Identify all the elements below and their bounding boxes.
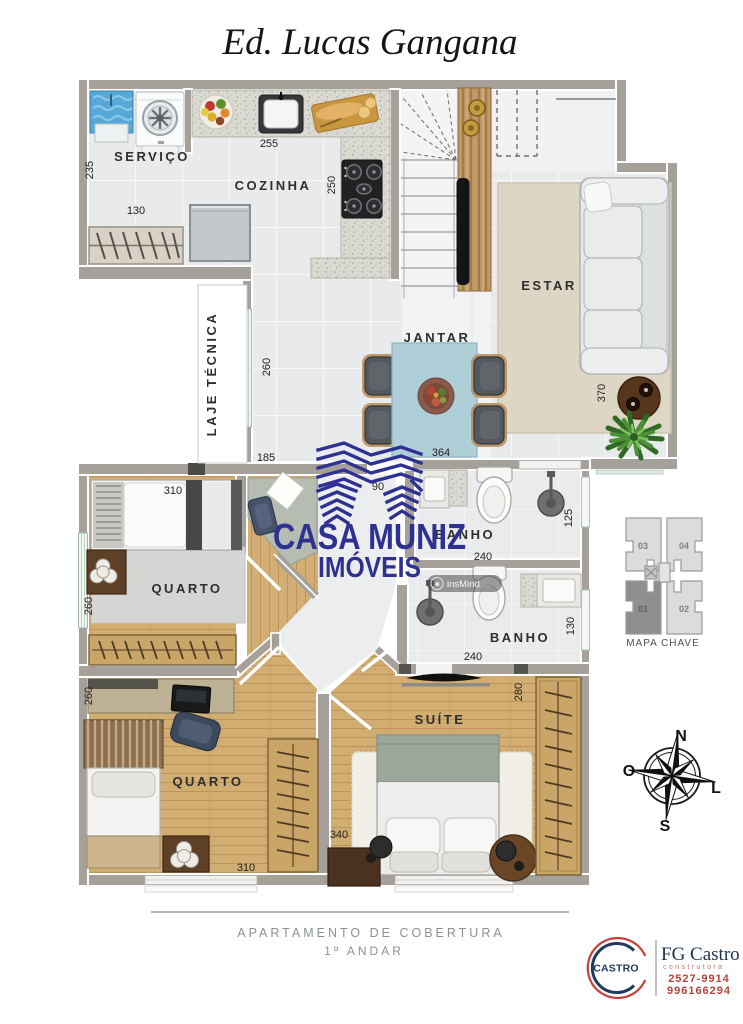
svg-text:Ed. Lucas Gangana: Ed. Lucas Gangana (222, 22, 518, 63)
svg-text:240: 240 (464, 651, 482, 663)
svg-text:COZINHA: COZINHA (235, 178, 312, 193)
svg-text:ESTAR: ESTAR (521, 278, 577, 293)
svg-text:JANTAR: JANTAR (404, 330, 471, 345)
svg-text:O: O (623, 763, 635, 780)
svg-text:QUARTO: QUARTO (151, 581, 222, 596)
svg-text:130: 130 (127, 205, 145, 217)
svg-text:...: ... (483, 579, 491, 589)
svg-text:130: 130 (565, 617, 577, 635)
svg-text:04: 04 (679, 541, 689, 551)
svg-text:250: 250 (326, 176, 338, 194)
svg-text:260: 260 (83, 597, 95, 615)
svg-text:construtora: construtora (663, 964, 724, 971)
svg-text:996166294: 996166294 (667, 985, 731, 997)
svg-text:340: 340 (330, 829, 348, 841)
svg-text:364: 364 (432, 447, 450, 459)
svg-text:310: 310 (237, 862, 255, 874)
svg-text:QUARTO: QUARTO (172, 774, 243, 789)
svg-text:125: 125 (563, 509, 575, 527)
svg-text:03: 03 (638, 541, 648, 551)
svg-text:S: S (660, 818, 671, 835)
svg-text:BANHO: BANHO (490, 630, 550, 645)
svg-text:MAPA CHAVE: MAPA CHAVE (626, 638, 700, 649)
svg-text:LAJE TÉCNICA: LAJE TÉCNICA (204, 312, 219, 437)
svg-text:L: L (711, 780, 721, 797)
svg-text:2527-9914: 2527-9914 (668, 973, 730, 985)
svg-text:185: 185 (257, 452, 275, 464)
svg-text:310: 310 (164, 485, 182, 497)
svg-text:370: 370 (596, 384, 608, 402)
svg-text:260: 260 (83, 687, 95, 705)
svg-text:IMÓVEIS: IMÓVEIS (318, 550, 421, 584)
svg-text:260: 260 (261, 358, 273, 376)
svg-text:APARTAMENTO DE COBERTURA: APARTAMENTO DE COBERTURA (237, 926, 504, 940)
svg-text:insMind: insMind (447, 579, 480, 590)
svg-text:SERVIÇO: SERVIÇO (114, 149, 190, 164)
svg-text:N: N (675, 728, 687, 745)
svg-text:✷: ✷ (434, 580, 441, 589)
svg-text:280: 280 (513, 683, 525, 701)
svg-text:255: 255 (260, 138, 278, 150)
svg-text:FG Castro: FG Castro (661, 944, 740, 965)
svg-text:CASTRO: CASTRO (593, 963, 639, 975)
svg-text:01: 01 (638, 604, 648, 614)
svg-text:CASA MUNIZ: CASA MUNIZ (273, 516, 466, 557)
svg-text:SUÍTE: SUÍTE (415, 712, 466, 727)
svg-text:1º ANDAR: 1º ANDAR (324, 944, 404, 958)
svg-text:235: 235 (84, 161, 96, 179)
svg-text:240: 240 (474, 551, 492, 563)
svg-text:02: 02 (679, 604, 689, 614)
